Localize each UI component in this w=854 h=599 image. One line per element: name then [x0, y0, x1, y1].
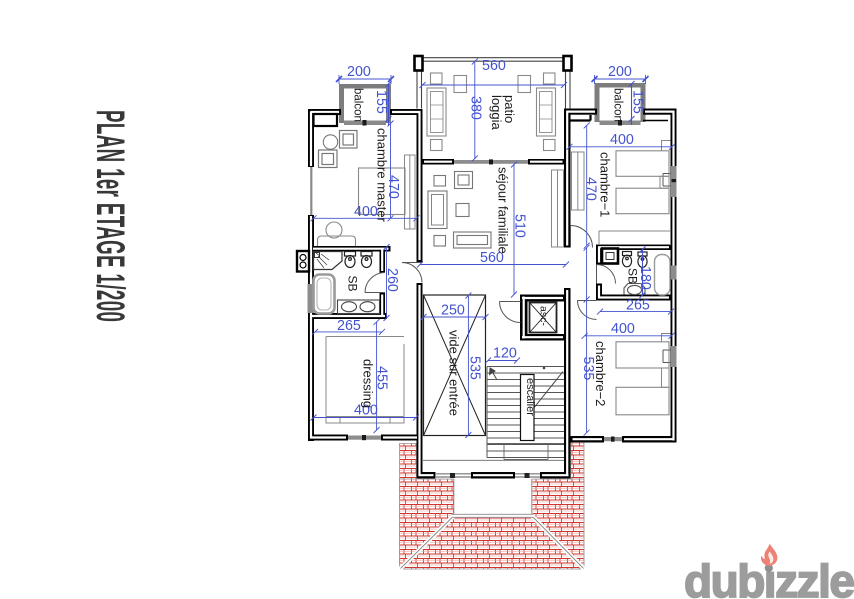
- svg-text:400: 400: [611, 321, 635, 337]
- svg-text:250: 250: [441, 303, 465, 319]
- svg-text:535: 535: [467, 356, 483, 380]
- svg-text:asc-: asc-: [538, 306, 550, 326]
- svg-text:200: 200: [608, 64, 632, 80]
- svg-text:PLAN 1er ETAGE 1/200: PLAN 1er ETAGE 1/200: [88, 110, 133, 322]
- svg-text:400: 400: [610, 132, 634, 148]
- svg-text:chambre master: chambre master: [375, 128, 390, 223]
- svg-text:chambre−1: chambre−1: [598, 152, 613, 217]
- svg-text:155: 155: [630, 90, 646, 114]
- svg-text:380: 380: [468, 96, 484, 120]
- svg-text:vide sur entrée: vide sur entrée: [447, 330, 462, 416]
- svg-text:balcon: balcon: [352, 88, 364, 122]
- svg-text:510: 510: [512, 214, 528, 238]
- svg-text:400: 400: [354, 204, 378, 220]
- svg-text:chambre−2: chambre−2: [593, 341, 608, 406]
- svg-text:560: 560: [482, 58, 506, 74]
- svg-text:120: 120: [493, 346, 517, 362]
- svg-text:dressing: dressing: [361, 359, 376, 408]
- svg-text:470: 470: [583, 177, 599, 201]
- svg-text:SB: SB: [346, 276, 360, 292]
- svg-text:200: 200: [347, 64, 371, 80]
- svg-text:séjour familiale: séjour familiale: [496, 167, 511, 254]
- svg-text:SB: SB: [626, 268, 640, 284]
- svg-text:escalier: escalier: [524, 378, 536, 416]
- svg-text:155: 155: [373, 90, 389, 114]
- svg-text:265: 265: [626, 298, 650, 314]
- svg-text:balcon: balcon: [612, 88, 624, 122]
- svg-text:260: 260: [384, 268, 400, 292]
- svg-text:265: 265: [337, 318, 361, 334]
